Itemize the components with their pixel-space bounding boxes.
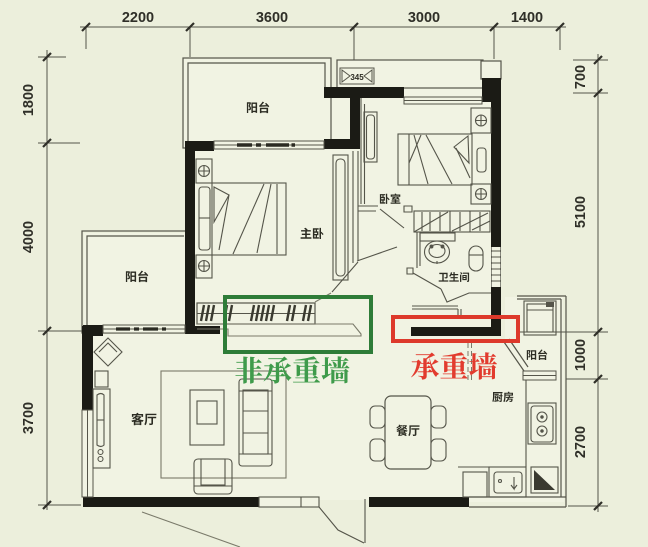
svg-text:2700: 2700 bbox=[573, 426, 589, 458]
svg-text:1400: 1400 bbox=[511, 10, 543, 26]
svg-text:5100: 5100 bbox=[573, 196, 589, 228]
svg-text:700: 700 bbox=[573, 65, 589, 89]
svg-text:3000: 3000 bbox=[408, 10, 440, 26]
svg-text:345: 345 bbox=[350, 73, 364, 82]
svg-text:3600: 3600 bbox=[256, 10, 288, 26]
svg-text:1800: 1800 bbox=[21, 84, 37, 116]
svg-text:4000: 4000 bbox=[21, 221, 37, 253]
svg-text:2200: 2200 bbox=[122, 10, 154, 26]
svg-text:3700: 3700 bbox=[21, 402, 37, 434]
svg-text:1000: 1000 bbox=[573, 339, 589, 371]
